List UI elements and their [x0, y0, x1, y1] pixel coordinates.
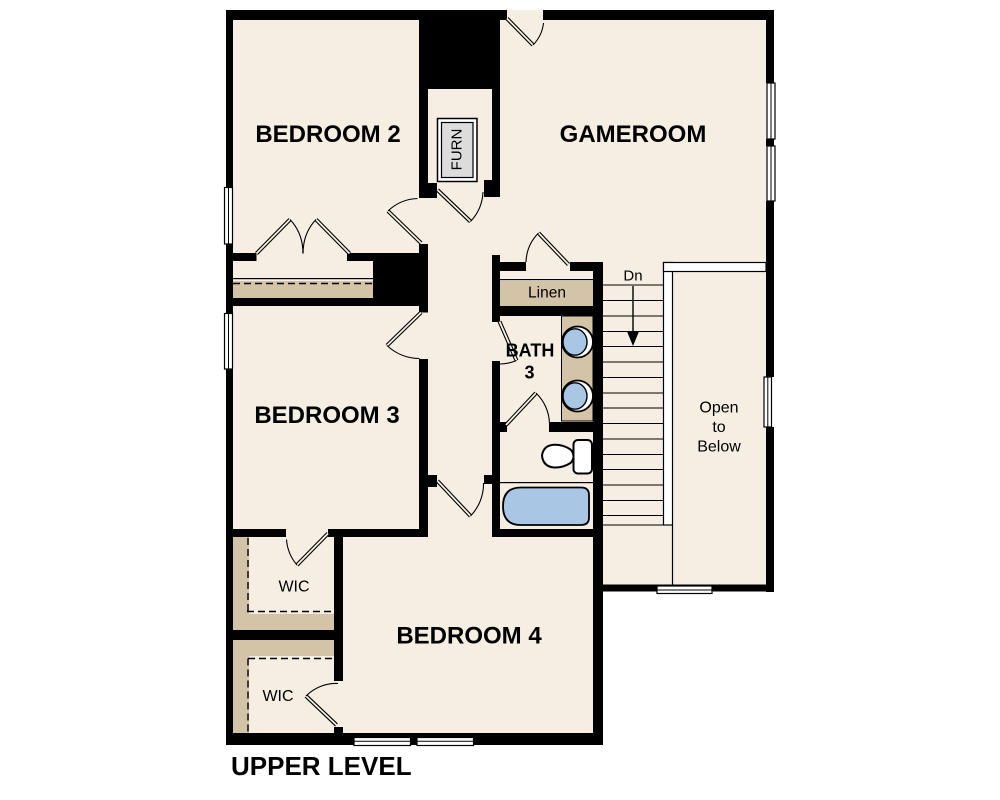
svg-text:GAMEROOM: GAMEROOM [560, 121, 707, 148]
svg-text:BEDROOM 2: BEDROOM 2 [255, 121, 400, 148]
svg-text:BATH: BATH [506, 341, 555, 361]
svg-text:to: to [712, 419, 725, 436]
svg-text:WIC: WIC [262, 688, 293, 705]
svg-text:Open: Open [699, 400, 738, 417]
svg-text:Linen: Linen [528, 285, 566, 302]
svg-text:BEDROOM 4: BEDROOM 4 [396, 623, 542, 650]
svg-text:BEDROOM 3: BEDROOM 3 [254, 402, 399, 429]
svg-text:FURN: FURN [449, 129, 466, 171]
svg-text:Dn: Dn [623, 268, 642, 285]
svg-text:3: 3 [524, 363, 534, 383]
svg-text:Below: Below [697, 439, 741, 456]
svg-text:WIC: WIC [278, 579, 309, 596]
svg-text:UPPER LEVEL: UPPER LEVEL [231, 751, 412, 781]
